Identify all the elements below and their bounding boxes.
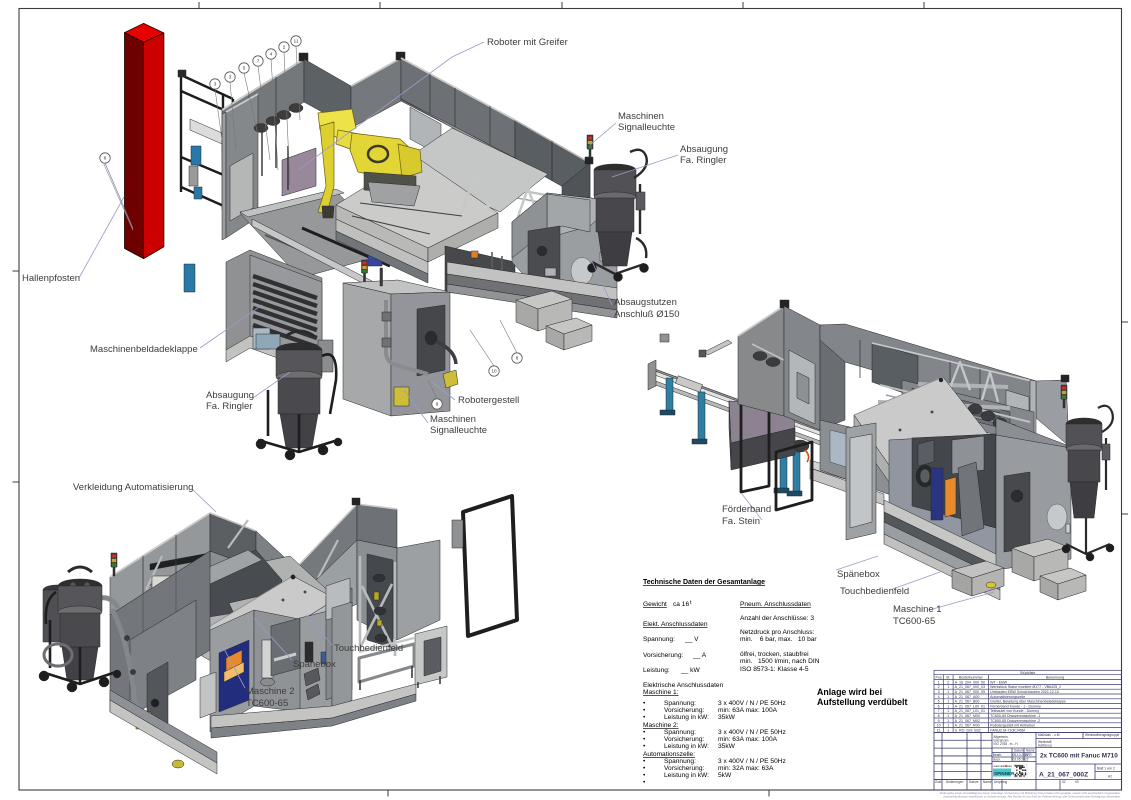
svg-text:1: 1 <box>947 724 949 728</box>
svg-text:Vorsicherung:: Vorsicherung: <box>664 707 704 714</box>
svg-text:A2: A2 <box>1108 775 1112 779</box>
svg-text:A_21_067_R00: A_21_067_R00 <box>955 724 980 728</box>
svg-text:Vorsicherung:: Vorsicherung: <box>643 652 683 659</box>
svg-text:min: 63A max: 100A: min: 63A max: 100A <box>718 707 778 714</box>
svg-text:min: 32A max: 63A: min: 32A max: 63A <box>718 765 774 772</box>
svg-text:Blatt 1 von 2: Blatt 1 von 2 <box>1097 767 1115 771</box>
svg-text:Roboter mit Greifer: Roboter mit Greifer <box>487 37 568 48</box>
svg-text:WT - EBW: WT - EBW <box>990 680 1008 684</box>
svg-text:1: 1 <box>947 695 949 699</box>
svg-text:Maschinenbeldadeklappe: Maschinenbeldadeklappe <box>90 344 198 355</box>
svg-text:7: 7 <box>938 709 940 713</box>
svg-text:Signalleuchte: Signalleuchte <box>618 122 675 133</box>
svg-text:Gepr.: Gepr. <box>993 758 1001 762</box>
svg-text:2: 2 <box>283 45 286 50</box>
svg-text:ca 16: ca 16 <box>673 601 689 608</box>
svg-text:Maschinen: Maschinen <box>618 111 664 122</box>
svg-text:Bearb.: Bearb. <box>993 753 1003 757</box>
svg-text:Gewicht: Gewicht <box>643 601 667 608</box>
svg-text:Fa. Ringler: Fa. Ringler <box>206 401 252 412</box>
svg-text:Halbzeug: Halbzeug <box>1038 744 1052 748</box>
svg-text:8: 8 <box>938 714 940 718</box>
svg-text:1: 1 <box>947 690 949 694</box>
svg-text:3 x 400V / N / PE 50Hz: 3 x 400V / N / PE 50Hz <box>718 729 786 736</box>
svg-text:Ursprung: Ursprung <box>994 780 1007 784</box>
svg-text:Bestellnummer: Bestellnummer <box>959 676 984 680</box>
svg-text:35kW: 35kW <box>718 743 736 750</box>
svg-text:1: 1 <box>947 719 949 723</box>
svg-text:Spannung:: Spannung: <box>664 729 696 736</box>
svg-text:Touchbedienfeld: Touchbedienfeld <box>840 586 909 597</box>
svg-text:ölfrei, trocken, staubfrei: ölfrei, trocken, staubfrei <box>740 651 809 658</box>
svg-text:Spänebox: Spänebox <box>837 569 880 580</box>
svg-text:Name: Name <box>1026 749 1035 753</box>
svg-text:Spannung:: Spannung: <box>664 758 696 765</box>
svg-text:9: 9 <box>436 402 439 407</box>
svg-text:Verkleidung Automatisierung: Verkleidung Automatisierung <box>73 482 193 493</box>
svg-text:Pneum. Anschlussdaten: Pneum. Anschlussdaten <box>740 601 811 608</box>
svg-text:11: 11 <box>937 728 941 732</box>
svg-text:Maschinen: Maschinen <box>430 414 476 425</box>
svg-text:Benennung: Benennung <box>1046 676 1064 680</box>
svg-text:Teilbautel von Kunde - Dummy: Teilbautel von Kunde - Dummy <box>990 709 1039 713</box>
svg-text:Datum: Datum <box>969 780 979 784</box>
svg-text:Netzdruck pro Anschluss:: Netzdruck pro Anschluss: <box>740 629 815 636</box>
svg-text:Leistung:: Leistung: <box>643 667 670 674</box>
svg-text:8: 8 <box>516 356 519 361</box>
svg-text:Absaugung: Absaugung <box>680 144 728 155</box>
svg-text:4: 4 <box>270 52 273 57</box>
svg-text:Leistung in kW:: Leistung in kW: <box>664 743 709 750</box>
svg-text:Fa. Ringler: Fa. Ringler <box>680 155 726 166</box>
svg-text:__ kW: __ kW <box>680 667 700 674</box>
svg-text:2: 2 <box>947 680 949 684</box>
svg-text:2: 2 <box>938 685 940 689</box>
svg-text:3: 3 <box>214 82 217 87</box>
svg-text:Werkstück Stator montiert Ø177: Werkstück Stator montiert Ø177 - VB6425_… <box>990 685 1061 689</box>
svg-text:SPINNER: SPINNER <box>994 771 1015 776</box>
svg-text:Förderband: Förderband <box>722 504 771 515</box>
svg-text:Anlage wird bei: Anlage wird bei <box>817 687 882 697</box>
svg-text:A_21_067_B00: A_21_067_B00 <box>955 700 980 704</box>
svg-text:10: 10 <box>937 724 941 728</box>
svg-text:min: 63A max: 100A: min: 63A max: 100A <box>718 736 778 743</box>
svg-text:FANUC M-710iC/45M: FANUC M-710iC/45M <box>990 728 1025 732</box>
svg-text:TC600-65: TC600-65 <box>246 698 288 709</box>
svg-text:03.05.2022: 03.05.2022 <box>1013 758 1029 762</box>
svg-text:4: 4 <box>938 695 940 699</box>
svg-text:Stückliste: Stückliste <box>1020 671 1035 675</box>
svg-text:St.: St. <box>946 676 950 680</box>
svg-text:1: 1 <box>947 704 949 708</box>
svg-text:5kW: 5kW <box>718 772 732 779</box>
svg-text:TC600-65 Drauzenmaschine -2: TC600-65 Drauzenmaschine -2 <box>990 719 1040 723</box>
svg-text:Umbauten EBW Schutzhauben 2021: Umbauten EBW Schutzhauben 2021.12.10 <box>990 690 1059 694</box>
svg-text:A_21_067_000_03: A_21_067_000_03 <box>955 685 985 689</box>
svg-text:TC600-65: TC600-65 <box>893 616 935 627</box>
svg-text:A_21_067_A00: A_21_067_A00 <box>955 695 980 699</box>
svg-text:Spannung:: Spannung: <box>664 700 696 707</box>
svg-text:Maßstab: - o.M.: Maßstab: - o.M. <box>1038 733 1060 737</box>
svg-text:min. 1500 l/min, nach DIN: min. 1500 l/min, nach DIN <box>740 658 820 665</box>
svg-text:Automatisierungszelle: Automatisierungszelle <box>990 695 1025 699</box>
svg-text:Förderband Kunde - 1 - Dummy: Förderband Kunde - 1 - Dummy <box>990 704 1041 708</box>
svg-text:1: 1 <box>947 700 949 704</box>
svg-text:A_21_067_L00_01: A_21_067_L00_01 <box>955 704 985 708</box>
svg-text:1: 1 <box>947 709 949 713</box>
svg-text:Pos: Pos <box>936 676 942 680</box>
svg-text:__ V: __ V <box>684 636 699 643</box>
svg-text:Robotergestell: Robotergestell <box>458 395 519 406</box>
svg-text:Fa. Stein: Fa. Stein <box>722 516 760 527</box>
svg-text:__ A: __ A <box>692 652 707 659</box>
svg-text:Änderungen: Änderungen <box>946 780 964 784</box>
svg-text:Spannung:: Spannung: <box>643 636 675 643</box>
svg-text:3 x 400V / N / PE 50Hz: 3 x 400V / N / PE 50Hz <box>718 700 786 707</box>
svg-text:TC600-65 Drauzenmaschine -1: TC600-65 Drauzenmaschine -1 <box>990 714 1040 718</box>
svg-text:7: 7 <box>257 59 260 64</box>
svg-text:6: 6 <box>104 156 107 161</box>
svg-text:Spänebox: Spänebox <box>293 659 336 670</box>
svg-text:Anschluß Ø150: Anschluß Ø150 <box>614 309 679 320</box>
svg-text:03: 03 <box>1075 780 1079 784</box>
svg-text:Signalleuchte: Signalleuchte <box>430 425 487 436</box>
svg-text:Greifer, Beladung über Maschin: Greifer, Beladung über Maschinenbeladekl… <box>990 700 1066 704</box>
svg-text:Elekt. Anschlussdaten: Elekt. Anschlussdaten <box>643 621 708 628</box>
svg-text:Hallenpfosten: Hallenpfosten <box>22 273 80 284</box>
svg-text:Maschine 1:: Maschine 1: <box>643 689 679 696</box>
svg-text:Zust.: Zust. <box>935 780 942 784</box>
svg-text:9: 9 <box>938 719 940 723</box>
svg-text:Leistung in kW:: Leistung in kW: <box>664 772 709 779</box>
svg-text:Absaugung: Absaugung <box>206 390 254 401</box>
svg-text:A_21_067_M02: A_21_067_M02 <box>955 719 980 723</box>
svg-text:A_21_067_000Z: A_21_067_000Z <box>1039 772 1088 779</box>
svg-text:Automationszelle:: Automationszelle: <box>643 751 695 758</box>
svg-text:S_RO_029_B32: S_RO_029_B32 <box>955 728 981 732</box>
svg-text:Anzahl der Anschlüsse: 3: Anzahl der Anschlüsse: 3 <box>740 615 814 622</box>
svg-text:Leistung in kW:: Leistung in kW: <box>664 714 709 721</box>
svg-text:ISO 2768 - m - H: ISO 2768 - m - H <box>994 742 1019 746</box>
svg-text:Touchbedienfeld: Touchbedienfeld <box>334 643 403 654</box>
svg-text:Elektrische Anschlussdaten: Elektrische Anschlussdaten <box>643 682 724 689</box>
svg-text:3: 3 <box>938 690 940 694</box>
svg-text:6: 6 <box>938 704 940 708</box>
svg-text:A_21_067_L01_01: A_21_067_L01_01 <box>955 709 985 713</box>
svg-text:Werkstoffzeugnisgruppe: Werkstoffzeugnisgruppe <box>1085 733 1119 737</box>
svg-text:2x TC600 mit Fanuc M710: 2x TC600 mit Fanuc M710 <box>1040 753 1118 760</box>
svg-text:Technische Daten der Gesamtanl: Technische Daten der Gesamtanlage <box>643 579 765 586</box>
svg-text:Absaugstutzen: Absaugstutzen <box>614 297 677 308</box>
svg-text:Vorsicherung:: Vorsicherung: <box>664 736 704 743</box>
svg-text:1: 1 <box>947 714 949 718</box>
svg-text:Aufstellung verdübelt: Aufstellung verdübelt <box>817 697 907 707</box>
svg-text:02: 02 <box>1062 780 1066 784</box>
svg-text:1: 1 <box>947 728 949 732</box>
svg-text:A_21_067_000_09: A_21_067_000_09 <box>955 690 985 694</box>
svg-text:1: 1 <box>947 685 949 689</box>
svg-text:3: 3 <box>229 75 232 80</box>
svg-text:GFR: GFR <box>1025 753 1032 757</box>
svg-text:Robotergestell mit Antrieben: Robotergestell mit Antrieben <box>990 724 1035 728</box>
svg-text:min. 6 bar, max. 10 bar: min. 6 bar, max. 10 bar <box>740 636 817 643</box>
svg-text:11: 11 <box>294 39 299 44</box>
svg-text:35kW: 35kW <box>718 714 736 721</box>
svg-text:A_21_067_M00: A_21_067_M00 <box>955 714 980 718</box>
svg-text:Vorsicherung:: Vorsicherung: <box>664 765 704 772</box>
svg-text:Maschine 2: Maschine 2 <box>246 686 295 697</box>
svg-text:Maschine 2:: Maschine 2: <box>643 722 679 729</box>
svg-text:3 x 400V / N / PE 50Hz: 3 x 400V / N / PE 50Hz <box>718 758 786 765</box>
svg-text:Datum: Datum <box>1014 749 1024 753</box>
svg-text:Name: Name <box>983 780 992 784</box>
svg-text:5: 5 <box>938 700 940 704</box>
svg-text:5: 5 <box>243 66 246 71</box>
svg-text:Zuwiderhandlungen verpflichten: Zuwiderhandlungen verpflichten zu Schade… <box>943 795 1121 799</box>
svg-text:A_16_204_000_50: A_16_204_000_50 <box>955 680 985 684</box>
svg-text:Maschine 1: Maschine 1 <box>893 604 942 615</box>
svg-text:ISO 8573-1: Klasse 4-5: ISO 8573-1: Klasse 4-5 <box>740 666 809 673</box>
svg-text:1: 1 <box>938 680 940 684</box>
svg-text:automationCare: automationCare <box>994 764 1013 768</box>
svg-text:10: 10 <box>491 369 497 374</box>
